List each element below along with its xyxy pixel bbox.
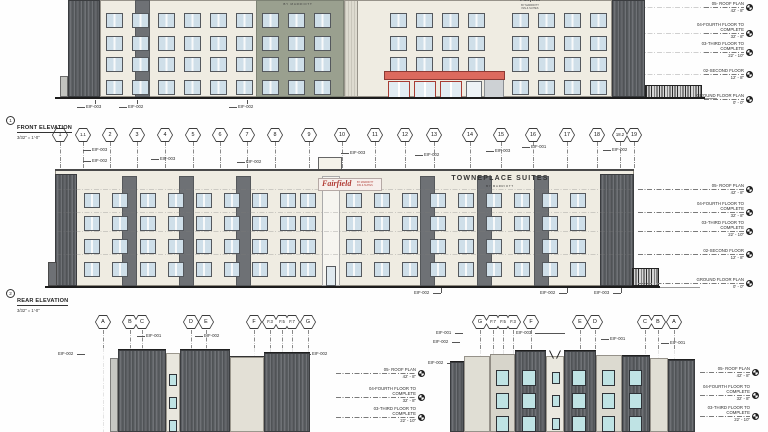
leader-line (77, 107, 85, 108)
material-tag: EIF-003 (92, 147, 107, 152)
window-icon (196, 216, 212, 231)
front-view-number-badge: 1 (6, 116, 15, 125)
level-name: 03-THIRD FLOOR TO COMPLETE (688, 42, 744, 52)
material-tag: EIF-003 (350, 150, 365, 155)
leader-line (567, 288, 568, 293)
level-name: 04-FOURTH FLOOR TO COMPLETE (694, 385, 750, 395)
leader-line (543, 333, 565, 334)
window-icon (496, 416, 509, 432)
level-name: 02-SECOND FLOOR (688, 249, 744, 254)
grid-leader-line (142, 330, 143, 348)
window-icon (280, 239, 296, 254)
side-dark-mass (264, 353, 310, 432)
window-icon (346, 239, 362, 254)
window-icon (570, 193, 586, 208)
grid-leader-line (405, 142, 406, 169)
window-icon (84, 239, 100, 254)
rear-parapet-line (55, 169, 634, 171)
window-icon (570, 239, 586, 254)
window-icon (590, 13, 607, 28)
window-icon (169, 420, 177, 432)
window-icon (458, 239, 474, 254)
window-icon (572, 393, 586, 409)
level-target-icon (746, 71, 753, 78)
level-target-icon (746, 96, 753, 103)
front-title-group: FRONT ELEVATION 3/32" = 1'-0" (17, 116, 72, 140)
leader-line (83, 161, 91, 162)
material-tag: EIF-002 (312, 351, 327, 356)
window-icon (522, 393, 536, 409)
level-target-icon (746, 228, 753, 235)
level-elevation: 42' - 8" (694, 373, 750, 378)
window-icon (262, 80, 279, 95)
sign-fairfield-line3: INN & SUITES (506, 7, 554, 10)
level-elevation: 12' - 8" (688, 75, 744, 80)
window-icon (402, 193, 418, 208)
level-name: 05- ROOF PLAN (688, 184, 744, 189)
level-target-icon (752, 392, 759, 399)
window-icon (514, 193, 530, 208)
window-icon (224, 193, 240, 208)
window-icon (224, 239, 240, 254)
level-target-icon (746, 4, 753, 11)
level-target-icon (752, 413, 759, 420)
material-tag: EIF-002 (204, 333, 219, 338)
leader-line (522, 147, 530, 148)
window-icon (184, 57, 201, 72)
window-icon (442, 57, 459, 72)
grid-leader-line (130, 330, 131, 348)
window-icon (514, 239, 530, 254)
sign-towneplace-rear-line2: BY MARRIOTT (450, 184, 550, 188)
entrance-side-panel (484, 78, 504, 98)
level-name: 03-THIRD FLOOR TO COMPLETE (360, 407, 416, 417)
material-tag: EIF-003 (495, 148, 510, 153)
level-name: 05- ROOF PLAN (688, 2, 744, 7)
window-icon (280, 216, 296, 231)
window-icon (514, 216, 530, 231)
window-icon (430, 216, 446, 231)
window-icon (184, 80, 201, 95)
window-icon (168, 239, 184, 254)
window-icon (112, 216, 128, 231)
window-icon (374, 239, 390, 254)
leader-line (195, 336, 203, 337)
grid-leader-line (309, 142, 310, 169)
window-icon (112, 262, 128, 277)
rear-right-tower (600, 174, 634, 286)
window-icon (552, 418, 560, 430)
window-icon (132, 57, 149, 72)
window-icon (486, 262, 502, 277)
window-icon (314, 57, 331, 72)
window-icon (168, 262, 184, 277)
front-right-tower (612, 0, 645, 97)
window-icon (300, 262, 316, 277)
window-icon (538, 80, 555, 95)
window-icon (430, 262, 446, 277)
level-name: 05- ROOF PLAN (360, 368, 416, 373)
level-target-icon (746, 251, 753, 258)
leader-line (535, 333, 543, 334)
grid-leader-line (645, 330, 646, 350)
architectural-elevation-sheet: 1 FRONT ELEVATION 3/32" = 1'-0" 2 REAR E… (0, 0, 768, 432)
window-icon (140, 239, 156, 254)
window-icon (112, 193, 128, 208)
material-tag: EIF-002 (414, 290, 429, 295)
grid-leader-line (220, 142, 221, 169)
material-tag: EIF-001 (610, 336, 625, 341)
window-icon (629, 393, 642, 409)
level-target-icon (418, 414, 425, 421)
front-left-step (60, 76, 68, 97)
grid-leader-line (513, 330, 514, 350)
window-icon (314, 36, 331, 51)
entrance-door (466, 81, 482, 98)
grid-leader-line (634, 142, 635, 169)
window-icon (590, 36, 607, 51)
material-tag: EIF-002 (424, 152, 439, 157)
level-name: 02-SECOND FLOOR (688, 69, 744, 74)
grid-leader-line (270, 330, 271, 348)
window-icon (168, 216, 184, 231)
window-icon (564, 36, 581, 51)
entrance-canopy (384, 71, 505, 80)
level-elevation: 12' - 8" (688, 255, 744, 260)
grid-leader-line (254, 330, 255, 348)
leader-line (601, 339, 609, 340)
window-icon (236, 57, 253, 72)
rear-entrance-door (326, 266, 336, 286)
rear-title-group: REAR ELEVATION 3/32" = 1'-0" (17, 289, 68, 313)
leader-line (486, 151, 494, 152)
window-icon (570, 216, 586, 231)
material-tag: EIF-002 (92, 158, 107, 163)
storefront-window (388, 81, 410, 98)
level-target-icon (418, 370, 425, 377)
window-icon (236, 80, 253, 95)
window-icon (288, 57, 305, 72)
window-icon (236, 13, 253, 28)
material-tag: EIF-002 (612, 147, 627, 152)
level-target-icon (746, 280, 753, 287)
material-tag: EIF-003 (594, 290, 609, 295)
leader-line (613, 293, 621, 294)
sign-fairfield-wordmark: Fairfield (322, 179, 362, 188)
window-icon (602, 370, 615, 386)
window-icon (262, 57, 279, 72)
window-icon (140, 262, 156, 277)
grid-leader-line (493, 330, 494, 350)
window-icon (542, 216, 558, 231)
level-name: 03-THIRD FLOOR TO COMPLETE (688, 221, 744, 231)
window-icon (564, 80, 581, 95)
leader-line (341, 153, 349, 154)
window-icon (430, 193, 446, 208)
floor-grid-line (57, 231, 634, 232)
leader-line (95, 100, 96, 104)
level-name: 04-FOURTH FLOOR TO COMPLETE (688, 202, 744, 212)
level-elevation: 42' - 8" (360, 374, 416, 379)
level-target-icon (746, 30, 753, 37)
level-elevation: 22' - 10" (688, 53, 744, 58)
level-elevation: 32' - 8" (688, 34, 744, 39)
grid-leader-line (110, 142, 111, 169)
material-tag: EIF-002 (246, 159, 261, 164)
window-icon (346, 193, 362, 208)
floor-grid-line (57, 254, 634, 255)
window-icon (542, 262, 558, 277)
window-icon (84, 262, 100, 277)
window-icon (590, 57, 607, 72)
leader-line (237, 162, 245, 163)
front-light-strip (344, 0, 358, 97)
grid-leader-line (375, 142, 376, 169)
grid-leader-line (470, 142, 471, 169)
material-tag: EIF-001 (531, 144, 546, 149)
level-name: GROUND FLOOR PLAN (688, 278, 744, 283)
material-tag: EIF-003 (86, 104, 101, 109)
window-icon (252, 239, 268, 254)
window-icon (416, 57, 433, 72)
window-icon (564, 13, 581, 28)
leader-line (151, 159, 159, 160)
front-elevation-scale: 3/32" = 1'-0" (17, 135, 72, 140)
window-icon (132, 13, 149, 28)
window-icon (486, 193, 502, 208)
material-tag: EIF-002 (433, 339, 448, 344)
window-icon (210, 57, 227, 72)
level-target-icon (746, 49, 753, 56)
window-icon (442, 13, 459, 28)
window-icon (512, 36, 529, 51)
window-icon (106, 36, 123, 51)
rear-elevation-titleblock: 2 REAR ELEVATION 3/32" = 1'-0" (6, 289, 68, 313)
leader-line (455, 333, 463, 334)
sign-towneplace-rear-line1: TOWNEPLACE SUITES (450, 175, 550, 182)
window-icon (629, 416, 642, 432)
front-ground-line (55, 97, 705, 99)
window-icon (140, 216, 156, 231)
window-icon (314, 80, 331, 95)
material-tag: EIF-002 (238, 104, 253, 109)
grid-leader-line (247, 142, 248, 169)
leader-line (441, 288, 442, 293)
rear-left-tower (55, 174, 77, 286)
window-icon (280, 193, 296, 208)
leader-line (137, 336, 145, 337)
material-tag: EIF-002 (58, 351, 73, 356)
level-target-icon (752, 369, 759, 376)
window-icon (512, 80, 529, 95)
window-icon (236, 36, 253, 51)
window-icon (158, 57, 175, 72)
level-elevation: 42' - 8" (688, 190, 744, 195)
window-icon (486, 239, 502, 254)
material-tag: EIF-002 (540, 290, 555, 295)
window-icon (132, 80, 149, 95)
window-icon (196, 262, 212, 277)
window-icon (458, 216, 474, 231)
leader-line (119, 107, 127, 108)
level-elevation: 22' - 10" (694, 417, 750, 422)
window-icon (252, 193, 268, 208)
window-icon (602, 416, 615, 432)
level-elevation: 32' - 8" (694, 396, 750, 401)
leader-line (621, 288, 622, 293)
side-light-panel (464, 356, 490, 432)
level-elevation: 32' - 8" (688, 213, 744, 218)
rear-elevation-title: REAR ELEVATION (17, 298, 68, 306)
grid-leader-line (597, 142, 598, 169)
window-icon (374, 216, 390, 231)
window-icon (496, 370, 509, 386)
window-icon (84, 193, 100, 208)
level-elevation: 22' - 10" (360, 418, 416, 423)
window-icon (106, 80, 123, 95)
window-icon (512, 13, 529, 28)
grid-leader-line (580, 330, 581, 350)
front-elevation-titleblock: 1 FRONT ELEVATION 3/32" = 1'-0" (6, 116, 72, 140)
storefront-window (440, 81, 462, 98)
leader-line (433, 293, 441, 294)
window-icon (224, 216, 240, 231)
window-icon (458, 262, 474, 277)
window-icon (572, 416, 586, 432)
grid-leader-line (137, 142, 138, 169)
window-icon (262, 36, 279, 51)
window-icon (140, 193, 156, 208)
window-icon (169, 397, 177, 409)
leader-line (452, 342, 460, 343)
window-icon (346, 262, 362, 277)
window-icon (514, 262, 530, 277)
window-icon (288, 36, 305, 51)
level-name: 03-THIRD FLOOR TO COMPLETE (694, 406, 750, 416)
side-dark-edge (668, 360, 695, 432)
window-icon (300, 239, 316, 254)
window-icon (442, 36, 459, 51)
window-icon (486, 216, 502, 231)
window-icon (458, 193, 474, 208)
material-tag: EIF-001 (146, 333, 161, 338)
window-icon (184, 13, 201, 28)
material-tag: EIF-003 (160, 156, 175, 161)
window-icon (416, 13, 433, 28)
leader-line (661, 343, 669, 344)
side-dark-mass (118, 350, 166, 432)
window-icon (288, 80, 305, 95)
level-elevation: 32' - 8" (360, 398, 416, 403)
window-icon (224, 262, 240, 277)
material-tag: EIF-002 (128, 104, 143, 109)
window-icon (538, 36, 555, 51)
window-icon (552, 372, 560, 384)
grid-leader-line (275, 142, 276, 169)
sign-fairfield-sub2: INN & SUITES (357, 184, 381, 187)
window-icon (402, 262, 418, 277)
window-icon (402, 216, 418, 231)
window-icon (468, 36, 485, 51)
side-cream-panel (230, 357, 264, 432)
grid-leader-line (103, 348, 104, 432)
level-target-icon (746, 209, 753, 216)
window-icon (538, 57, 555, 72)
window-icon (300, 216, 316, 231)
window-icon (252, 216, 268, 231)
window-icon (374, 193, 390, 208)
grid-leader-line (308, 330, 309, 348)
window-icon (402, 239, 418, 254)
window-icon (106, 57, 123, 72)
rear-view-number-badge: 2 (6, 289, 15, 298)
window-icon (542, 193, 558, 208)
grid-leader-line (595, 330, 596, 350)
leader-line (415, 155, 423, 156)
window-icon (112, 239, 128, 254)
window-icon (106, 13, 123, 28)
level-elevation: 0' - 0" (688, 284, 744, 289)
grid-leader-line (501, 142, 502, 169)
material-tag: EIF-001 (436, 330, 451, 335)
window-icon (390, 13, 407, 28)
level-name: GROUND FLOOR PLAN (688, 94, 744, 99)
floor-grid-line (57, 212, 634, 213)
storefront-window (414, 81, 436, 98)
grid-leader-line (60, 142, 61, 169)
rear-left-low-step (48, 262, 57, 286)
window-icon (522, 416, 536, 432)
rear-ground-line (45, 286, 660, 288)
grid-leader-line (503, 330, 504, 350)
window-icon (280, 262, 296, 277)
grid-leader-line (480, 330, 481, 350)
window-icon (468, 13, 485, 28)
level-elevation: 22' - 10" (688, 232, 744, 237)
leader-line (83, 150, 91, 151)
window-icon (512, 57, 529, 72)
leader-line (603, 150, 611, 151)
front-left-tower (68, 0, 100, 97)
sign-towneplace-line2: BY MARRIOTT (250, 2, 346, 6)
grid-leader-line (103, 330, 104, 348)
window-icon (314, 13, 331, 28)
window-icon (168, 193, 184, 208)
window-icon (288, 13, 305, 28)
level-name: 05- ROOF PLAN (694, 367, 750, 372)
leader-line (77, 354, 85, 355)
window-icon (252, 262, 268, 277)
window-icon (300, 193, 316, 208)
leader-line (247, 100, 248, 104)
window-icon (390, 36, 407, 51)
window-icon (210, 80, 227, 95)
window-icon (390, 57, 407, 72)
leader-line (137, 100, 138, 104)
grid-leader-line (292, 330, 293, 348)
window-icon (570, 262, 586, 277)
window-icon (602, 393, 615, 409)
material-tag: EIF-002 (428, 360, 443, 365)
window-icon (416, 36, 433, 51)
window-icon (468, 57, 485, 72)
window-icon (210, 13, 227, 28)
level-elevation: 42' - 8" (688, 8, 744, 13)
window-icon (542, 239, 558, 254)
window-icon (132, 36, 149, 51)
window-icon (572, 370, 586, 386)
window-icon (496, 393, 509, 409)
